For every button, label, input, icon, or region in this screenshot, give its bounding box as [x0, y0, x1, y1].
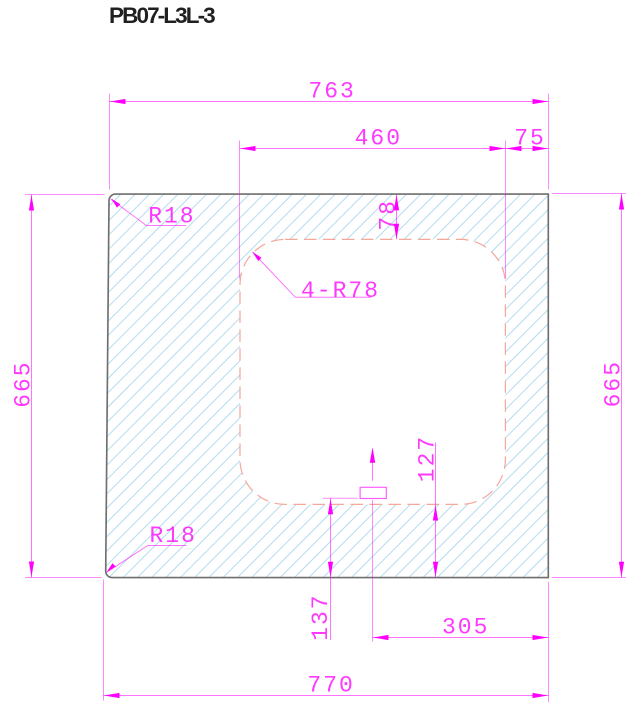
svg-text:127: 127	[415, 435, 441, 482]
svg-text:75: 75	[514, 125, 546, 151]
svg-text:78: 78	[376, 199, 402, 231]
svg-text:137: 137	[308, 593, 334, 640]
svg-text:305: 305	[442, 615, 489, 641]
svg-text:770: 770	[307, 673, 354, 699]
svg-text:763: 763	[308, 79, 355, 105]
svg-text:4-R78: 4-R78	[301, 278, 380, 304]
svg-text:R18: R18	[150, 523, 197, 549]
svg-text:665: 665	[600, 360, 626, 407]
svg-text:R18: R18	[148, 203, 195, 229]
svg-text:665: 665	[11, 360, 37, 407]
svg-text:460: 460	[355, 126, 402, 152]
